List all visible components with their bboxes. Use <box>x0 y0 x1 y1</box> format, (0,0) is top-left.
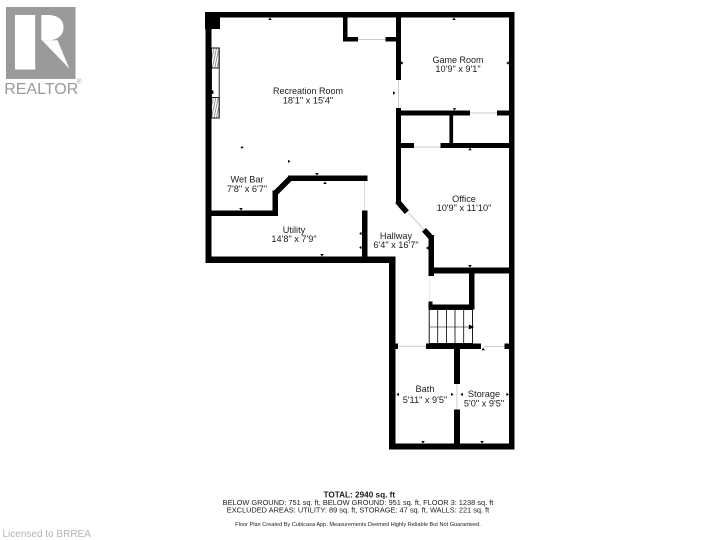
svg-text:5'0" x 9'5": 5'0" x 9'5" <box>464 399 504 409</box>
svg-text:10'9" x 9'1": 10'9" x 9'1" <box>435 64 480 74</box>
svg-text:Floor Plan Created By Cubicasa: Floor Plan Created By Cubicasa App. Meas… <box>235 522 481 528</box>
svg-text:6'4" x 16'7": 6'4" x 16'7" <box>373 240 418 250</box>
svg-text:10'9" x 11'10": 10'9" x 11'10" <box>437 203 492 213</box>
svg-text:EXCLUDED AREAS: UTILITY: 89 sq: EXCLUDED AREAS: UTILITY: 89 sq. ft, STOR… <box>227 506 489 515</box>
svg-text:Bath: Bath <box>416 384 435 394</box>
svg-text:5'11" x 9'5": 5'11" x 9'5" <box>403 395 448 405</box>
svg-text:Storage: Storage <box>468 389 500 399</box>
svg-text:18'1" x 15'4": 18'1" x 15'4" <box>283 95 333 105</box>
svg-text:REALTOR: REALTOR <box>4 81 78 98</box>
svg-text:7'8" x 6'7": 7'8" x 6'7" <box>227 184 267 194</box>
svg-text:14'8" x 7'9": 14'8" x 7'9" <box>271 234 316 244</box>
svg-text:®: ® <box>77 78 82 86</box>
svg-text:Licensed to BRREA: Licensed to BRREA <box>3 529 92 540</box>
